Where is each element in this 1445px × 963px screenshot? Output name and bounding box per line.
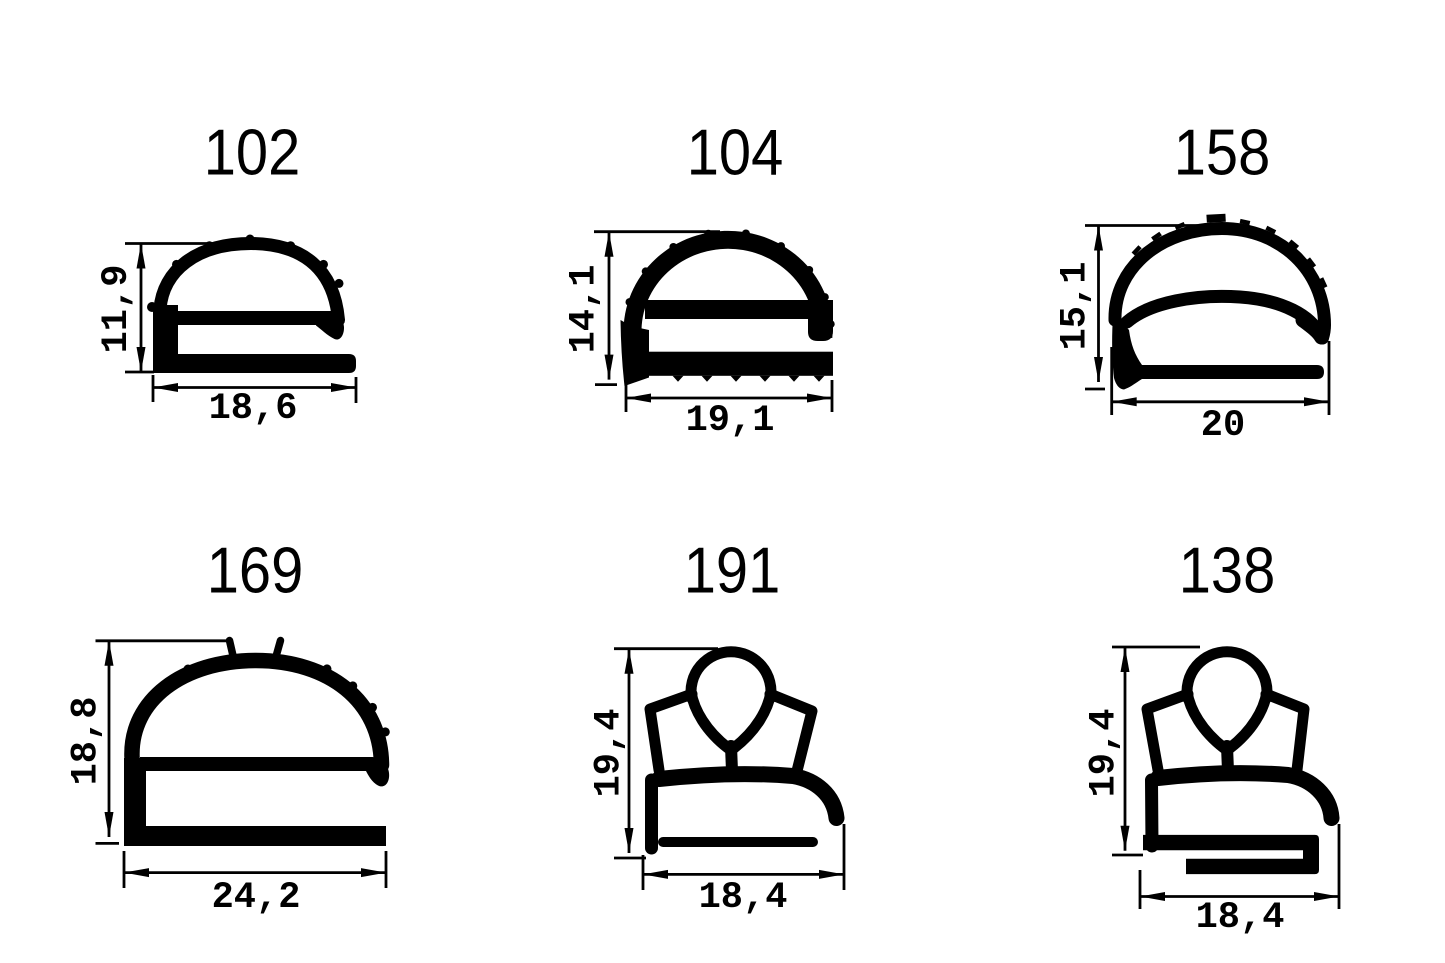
svg-text:138: 138 <box>1179 534 1276 607</box>
svg-text:18,8: 18,8 <box>66 697 108 786</box>
svg-text:18,4: 18,4 <box>1196 897 1285 939</box>
svg-text:24,2: 24,2 <box>212 877 301 919</box>
svg-text:19,1: 19,1 <box>686 400 775 442</box>
svg-text:102: 102 <box>204 116 301 189</box>
svg-text:14,1: 14,1 <box>564 265 606 354</box>
svg-text:11,9: 11,9 <box>96 265 138 354</box>
svg-text:191: 191 <box>684 534 781 607</box>
svg-text:20: 20 <box>1201 405 1245 447</box>
svg-text:19,4: 19,4 <box>1084 709 1126 798</box>
svg-text:18,6: 18,6 <box>209 388 298 430</box>
svg-text:104: 104 <box>687 116 784 189</box>
svg-text:19,4: 19,4 <box>589 709 631 798</box>
svg-text:18,4: 18,4 <box>699 877 788 919</box>
svg-text:158: 158 <box>1174 116 1271 189</box>
svg-text:169: 169 <box>207 534 304 607</box>
svg-text:15,1: 15,1 <box>1055 262 1097 351</box>
